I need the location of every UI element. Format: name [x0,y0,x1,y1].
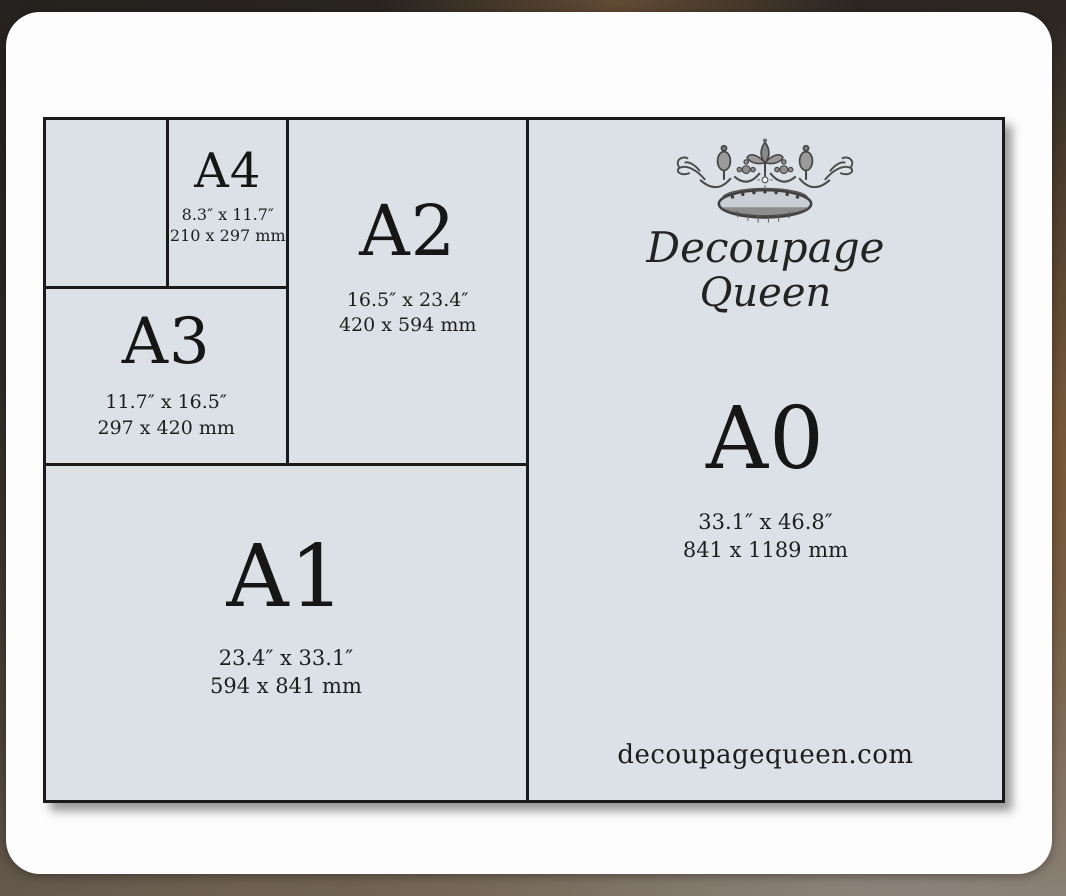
panel-a2-label: A2 [359,196,456,266]
panel-a2-mm: 420 x 594 mm [339,313,476,339]
panel-a4-label: A4 [194,147,261,195]
panel-a3-mm: 297 x 420 mm [98,416,235,442]
panel-a3-inches: 11.7″ x 16.5″ [98,390,235,416]
panel-a4: A4 8.3″ x 11.7″ 210 x 297 mm [169,120,286,286]
panel-a0: Decoupage Queen A0 33.1″ x 46.8″ 841 x 1… [526,120,1002,800]
panel-a4-inches: 8.3″ x 11.7″ [170,204,286,226]
panel-a3: A3 11.7″ x 16.5″ 297 x 420 mm [46,289,286,463]
panel-a0-inches: 33.1″ x 46.8″ [683,508,848,536]
crown-icon [671,132,859,226]
panel-a2-inches: 16.5″ x 23.4″ [339,288,476,314]
panel-a4-mm: 210 x 297 mm [170,225,286,247]
paper-size-chart: A4 8.3″ x 11.7″ 210 x 297 mm A3 11.7″ x … [43,117,1005,803]
panel-a5-blank [46,120,169,286]
chart-a5-a4-row: A4 8.3″ x 11.7″ 210 x 297 mm [46,120,286,289]
panel-a2: A2 16.5″ x 23.4″ 420 x 594 mm [286,120,525,463]
brand-name: Decoupage Queen [646,228,884,312]
chart-left-half: A4 8.3″ x 11.7″ 210 x 297 mm A3 11.7″ x … [46,120,526,800]
panel-a1-mm: 594 x 841 mm [210,672,362,700]
panel-a0-label: A0 [683,396,848,482]
chart-a4-a3-column: A4 8.3″ x 11.7″ 210 x 297 mm A3 11.7″ x … [46,120,286,463]
chart-top-left-quadrant: A4 8.3″ x 11.7″ 210 x 297 mm A3 11.7″ x … [46,120,526,463]
panel-a0-mm: 841 x 1189 mm [683,536,848,564]
website-text: decoupagequeen.com [617,740,913,770]
panel-a1: A1 23.4″ x 33.1″ 594 x 841 mm [46,463,526,800]
brand-name-line2: Queen [646,274,884,312]
panel-a1-label: A1 [227,534,346,620]
brand-name-line1: Decoupage [646,228,884,268]
panel-a3-label: A3 [122,310,211,374]
panel-a1-inches: 23.4″ x 33.1″ [210,644,362,672]
